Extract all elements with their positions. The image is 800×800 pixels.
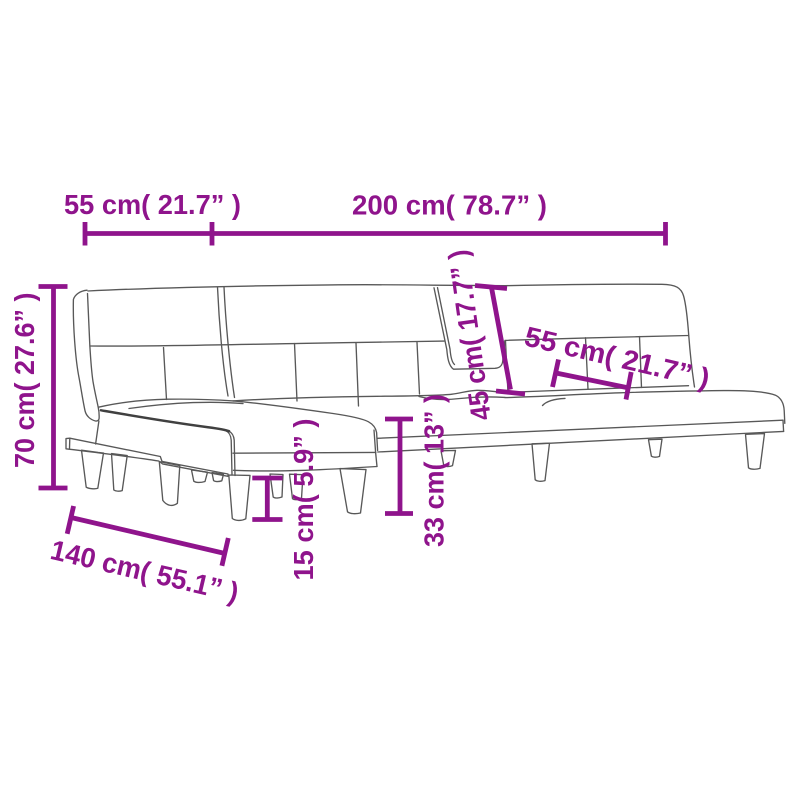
svg-text:55 cm( 21.7” ): 55 cm( 21.7” ) (64, 189, 241, 220)
svg-text:33 cm( 13” ): 33 cm( 13” ) (419, 394, 450, 547)
svg-text:15 cm( 5.9” ): 15 cm( 5.9” ) (288, 419, 319, 581)
svg-text:200 cm( 78.7” ): 200 cm( 78.7” ) (352, 190, 547, 221)
svg-text:70 cm( 27.6” ): 70 cm( 27.6” ) (9, 293, 40, 469)
